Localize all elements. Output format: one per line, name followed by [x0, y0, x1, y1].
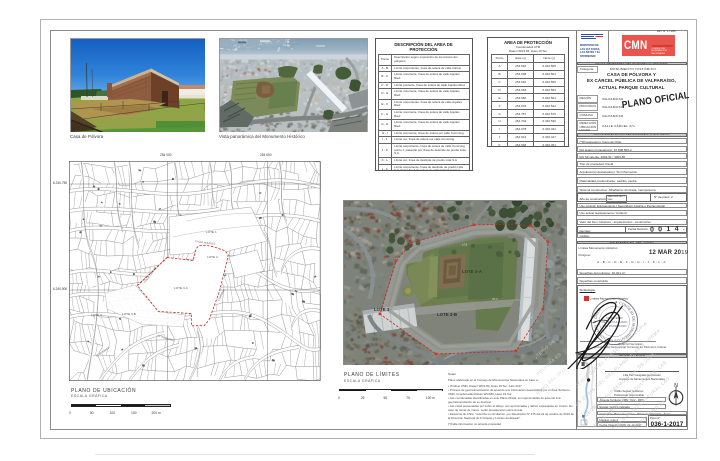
svg-text:LOTE 3: LOTE 3 — [91, 313, 102, 317]
svg-text:LOTE 3-A: LOTE 3-A — [174, 286, 189, 290]
svg-text:LOTE 1: LOTE 1 — [206, 230, 217, 234]
svg-text:LOTE 3-B: LOTE 3-B — [122, 312, 136, 316]
svg-text:LOTE 2: LOTE 2 — [207, 255, 218, 259]
